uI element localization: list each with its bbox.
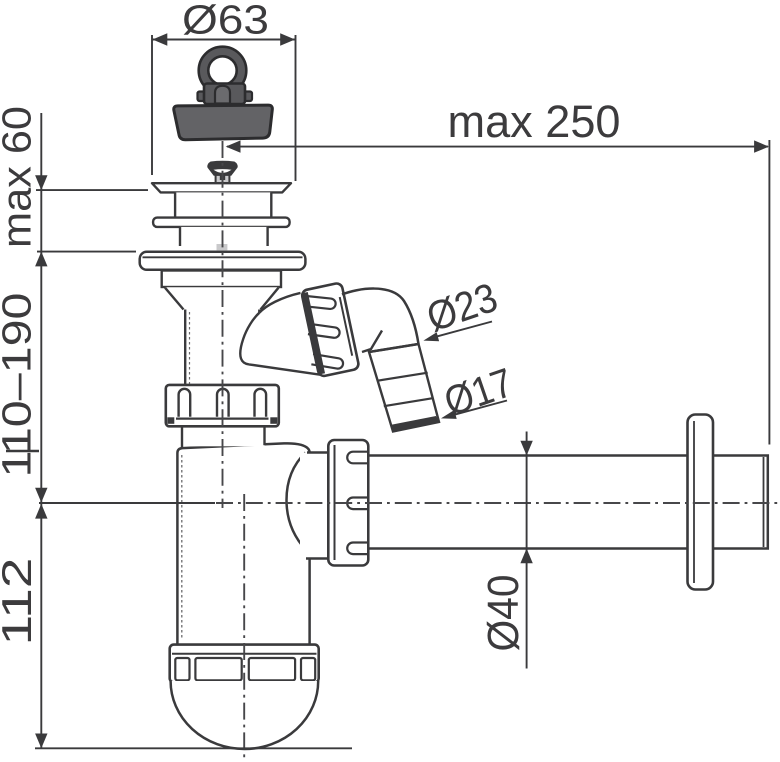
svg-text:max 250: max 250 bbox=[448, 96, 621, 147]
svg-text:110–190: 110–190 bbox=[0, 293, 40, 478]
svg-text:max 60: max 60 bbox=[0, 106, 40, 248]
svg-text:Ø63: Ø63 bbox=[182, 0, 269, 43]
svg-text:112: 112 bbox=[0, 558, 40, 646]
svg-text:Ø40: Ø40 bbox=[479, 575, 528, 652]
